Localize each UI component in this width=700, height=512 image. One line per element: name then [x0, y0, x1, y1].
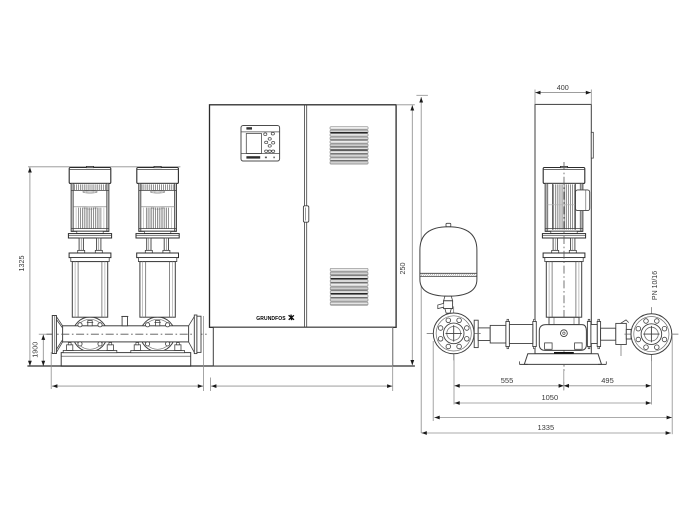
svg-text:PN 10/16: PN 10/16 — [652, 271, 659, 300]
svg-text:1325: 1325 — [17, 256, 26, 272]
svg-text:250: 250 — [398, 263, 407, 275]
svg-text:1335: 1335 — [537, 423, 554, 432]
svg-text:555: 555 — [501, 376, 514, 385]
svg-text:495: 495 — [601, 376, 614, 385]
svg-text:400: 400 — [557, 83, 569, 92]
svg-text:1900: 1900 — [30, 342, 39, 358]
svg-text:GRUNDFOS: GRUNDFOS — [256, 316, 286, 322]
svg-text:1050: 1050 — [541, 393, 558, 402]
